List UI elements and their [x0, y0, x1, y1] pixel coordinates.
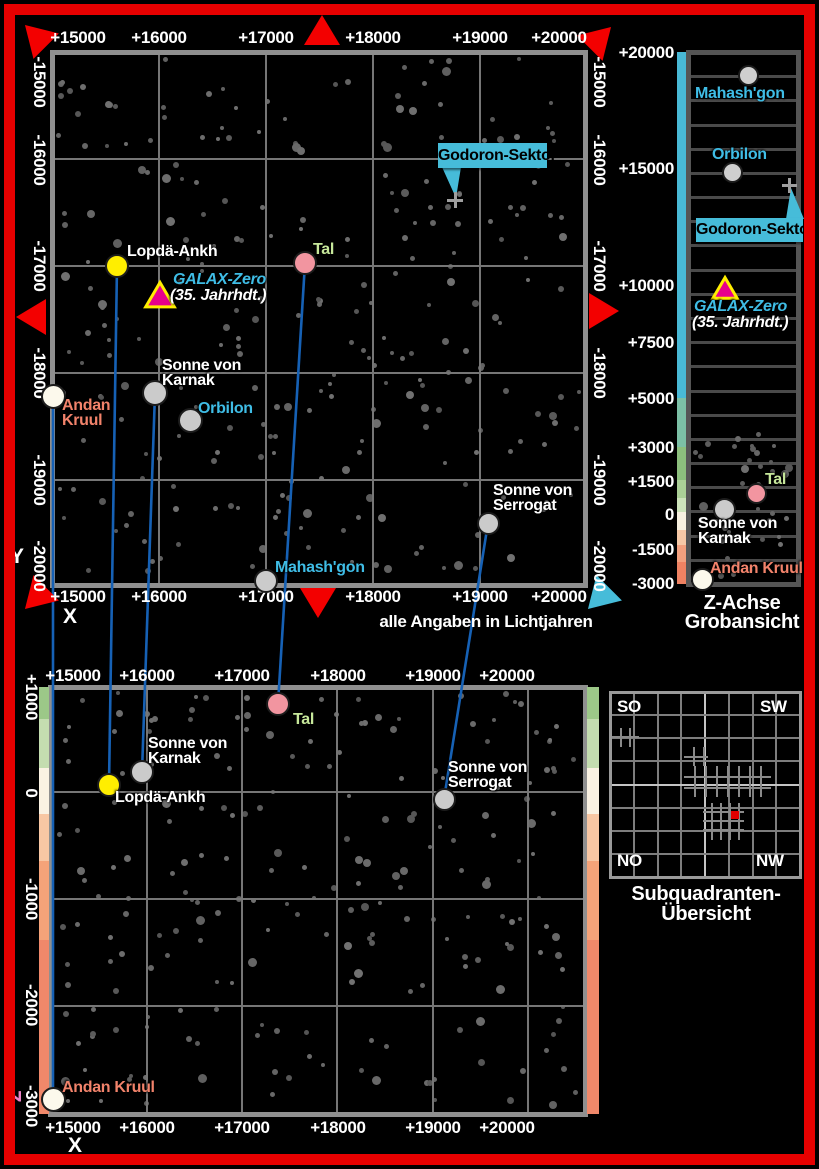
label-line: Orbilon	[198, 401, 253, 416]
corner-label-no: NO	[617, 851, 642, 871]
label-line: Serrogat	[493, 498, 572, 513]
label-line: GALAX-Zero	[694, 299, 787, 314]
zpanel-tick: +15000	[594, 159, 674, 179]
label-line: Karnak	[162, 373, 241, 388]
label-line: (35. Jahrhdt.)	[692, 315, 788, 330]
axis-tick: +19000	[452, 587, 507, 607]
label-lopda-ankh: Lopdä-Ankh	[127, 244, 217, 259]
zpanel-tick: 0	[594, 505, 674, 525]
sector-cross-godoron-cross	[454, 192, 457, 208]
x-axis-letter-top-map: X	[63, 605, 77, 629]
label-line: GALAX-Zero	[173, 272, 266, 287]
label-sonne-von-karnak: Sonne vonKarnak	[162, 358, 241, 388]
star-marker-sonne-von-serrogat	[477, 512, 500, 535]
label-galax-zero-era: (35. Jahrhdt.)	[692, 315, 788, 330]
label-tal: Tal	[293, 712, 314, 727]
label-galax-zero: GALAX-Zero	[694, 299, 787, 314]
label-line: Mahash'gon	[695, 86, 785, 101]
label-line: Andan	[62, 398, 110, 413]
axis-tick: +18000	[310, 666, 365, 686]
label-line: Karnak	[698, 531, 777, 546]
label-andan-kruul: Andan Kruul	[62, 1080, 155, 1095]
label-line: Tal	[765, 472, 786, 487]
label-orbilon: Orbilon	[198, 401, 253, 416]
label-line: Serrogat	[448, 775, 527, 790]
axis-tick: +20000	[479, 1118, 534, 1138]
zpanel-tick: +5000	[594, 389, 674, 409]
y-axis-letter: Y	[10, 545, 24, 569]
label-line: Sonne von	[448, 760, 527, 775]
star-marker-tal	[746, 483, 767, 504]
foreground-layer: +15000+15000+16000+16000+17000+17000+180…	[0, 0, 819, 1169]
star-marker-tal	[266, 692, 290, 716]
axis-tick: -16000	[29, 134, 49, 185]
star-marker-lopda-ankh	[105, 254, 129, 278]
label-line: Lopdä-Ankh	[115, 790, 205, 805]
label-sonne-von-karnak: Sonne vonKarnak	[698, 516, 777, 546]
axis-tick: +17000	[214, 666, 269, 686]
zpanel-tick: -1500	[594, 540, 674, 560]
label-mahashgon: Mahash'gon	[275, 560, 365, 575]
zpanel-tick: +10000	[594, 276, 674, 296]
units-annotation: alle Angaben in Lichtjahren	[379, 612, 592, 632]
label-sonne-von-karnak: Sonne vonKarnak	[148, 736, 227, 766]
axis-tick: +20000	[531, 587, 586, 607]
axis-tick: +16000	[119, 1118, 174, 1138]
sector-cross-godoron-cross	[788, 178, 791, 193]
label-sonne-von-serrogat: Sonne vonSerrogat	[493, 483, 572, 513]
callout-godoron-top-map: Godoron-Sektor	[438, 143, 547, 168]
axis-tick: +17000	[238, 28, 293, 48]
axis-tick: +20000	[479, 666, 534, 686]
zpanel-title-line2: Grobansicht	[685, 611, 800, 634]
star-marker-orbilon	[722, 162, 743, 183]
zpanel-tick: +3000	[594, 438, 674, 458]
axis-tick: +19000	[405, 666, 460, 686]
label-lopda-ankh: Lopdä-Ankh	[115, 790, 205, 805]
label-line: Sonne von	[698, 516, 777, 531]
label-orbilon: Orbilon	[712, 147, 767, 162]
zpanel-tick: +7500	[594, 333, 674, 353]
label-sonne-von-serrogat: Sonne vonSerrogat	[448, 760, 527, 790]
zpanel-tick: +20000	[594, 43, 674, 63]
label-galax-zero-era: (35. Jahrhdt.)	[170, 288, 266, 303]
axis-tick: -2000	[21, 984, 41, 1026]
axis-tick: -15000	[589, 56, 609, 107]
axis-tick: +16000	[131, 587, 186, 607]
axis-tick: +18000	[310, 1118, 365, 1138]
corner-label-sw: SW	[760, 697, 787, 717]
label-line: Sonne von	[493, 483, 572, 498]
label-line: Tal	[293, 712, 314, 727]
axis-tick: -17000	[29, 240, 49, 291]
x-axis-letter-bottom-map: X	[68, 1134, 82, 1158]
star-marker-mahashgon	[738, 65, 759, 86]
axis-tick: -15000	[29, 56, 49, 107]
label-line: Orbilon	[712, 147, 767, 162]
axis-tick: +20000	[531, 28, 586, 48]
label-andan-kruul: AndanKruul	[62, 398, 110, 428]
zpanel-tick: -3000	[594, 574, 674, 594]
label-line: Sonne von	[148, 736, 227, 751]
label-andan-kruul: Andan Kruul	[710, 561, 803, 576]
axis-tick: +18000	[345, 28, 400, 48]
axis-tick: +19000	[452, 28, 507, 48]
z-axis-letter: Z	[0, 1090, 24, 1103]
axis-tick: +19000	[405, 1118, 460, 1138]
label-line: Lopdä-Ankh	[127, 244, 217, 259]
zpanel-tick: +1500	[594, 472, 674, 492]
corner-label-so: SO	[617, 697, 641, 717]
axis-tick: -19000	[29, 454, 49, 505]
axis-tick: +15000	[45, 666, 100, 686]
label-line: Karnak	[148, 751, 227, 766]
axis-tick: +1000	[21, 674, 41, 720]
star-sector-map: +15000+15000+16000+16000+17000+17000+180…	[0, 0, 819, 1169]
axis-tick: -1000	[21, 878, 41, 920]
axis-tick: +16000	[131, 28, 186, 48]
axis-tick: +17000	[214, 1118, 269, 1138]
label-tal: Tal	[765, 472, 786, 487]
callout-godoron-zpanel: Godoron-Sektor	[696, 218, 803, 242]
label-line: Andan Kruul	[710, 561, 803, 576]
label-galax-zero: GALAX-Zero	[173, 272, 266, 287]
axis-tick: +18000	[345, 587, 400, 607]
label-mahashgon: Mahash'gon	[695, 86, 785, 101]
label-line: Tal	[313, 242, 334, 257]
axis-tick: +15000	[50, 587, 105, 607]
axis-tick: +15000	[50, 28, 105, 48]
label-tal: Tal	[313, 242, 334, 257]
subquadrant-title-line2: Übersicht	[661, 903, 751, 926]
label-line: Mahash'gon	[275, 560, 365, 575]
label-line: Sonne von	[162, 358, 241, 373]
axis-tick: -20000	[29, 540, 49, 591]
axis-tick: +16000	[119, 666, 174, 686]
label-line: Kruul	[62, 413, 110, 428]
corner-label-nw: NW	[756, 851, 784, 871]
axis-tick: 0	[21, 788, 41, 797]
label-line: (35. Jahrhdt.)	[170, 288, 266, 303]
label-line: Andan Kruul	[62, 1080, 155, 1095]
